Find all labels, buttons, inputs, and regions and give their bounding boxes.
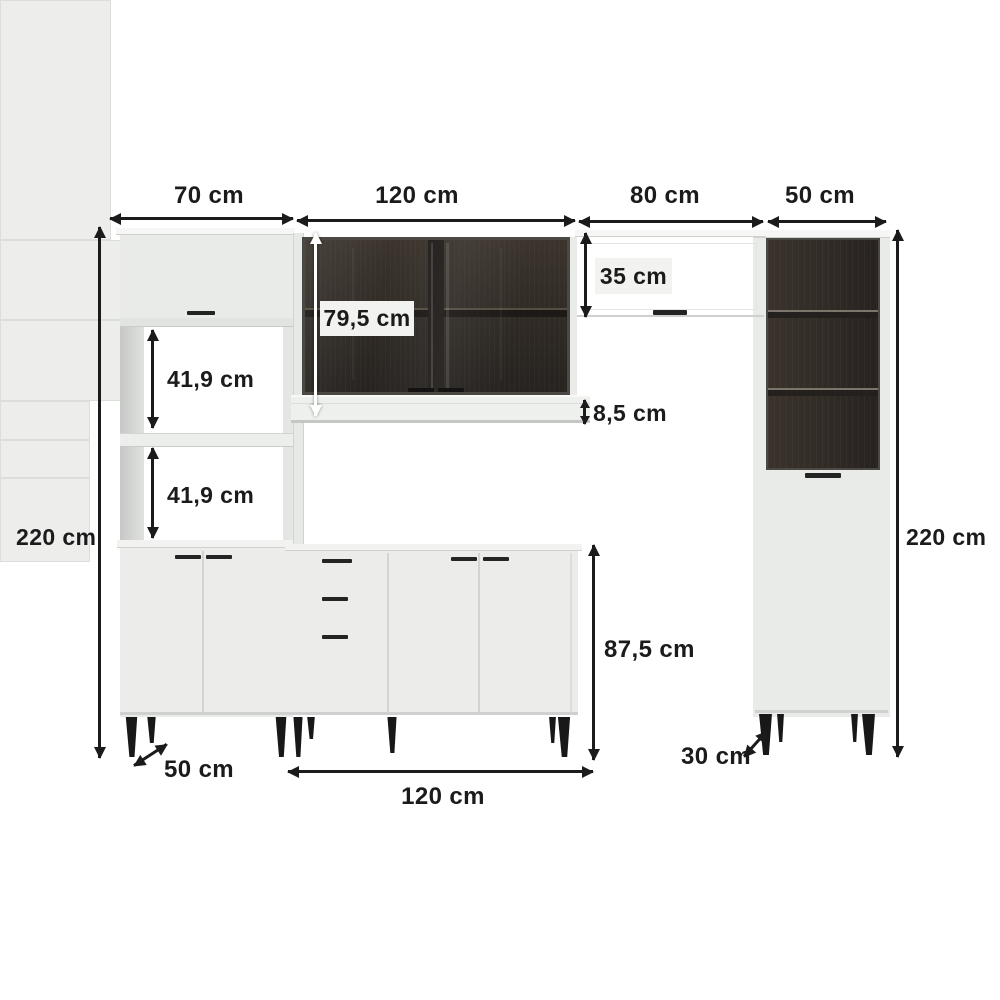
- dim-label-overhead-cabinet-width: 80 cm: [605, 183, 725, 209]
- dim-arrow-hutch-depth: [133, 743, 167, 767]
- base-leg-front-left: [292, 717, 304, 757]
- dim-arrow-countertop-thickness: [583, 400, 586, 424]
- hutch-middle-shelf: [120, 433, 293, 447]
- dim-arrow-wall-cabinet-height: [314, 233, 317, 416]
- base-door-split: [478, 553, 480, 714]
- tall-cabinet-leg-rear-left: [776, 714, 785, 742]
- wall-cabinet-end-panel: [570, 237, 577, 397]
- hutch-base-top-edge: [117, 540, 296, 548]
- hutch-base-door-handle-left: [175, 555, 201, 559]
- tall-cabinet-shelf-compartment-3: [768, 396, 878, 468]
- dim-label-base-cabinet-width: 120 cm: [383, 784, 503, 810]
- base-drawer-1-handle: [322, 559, 352, 563]
- base-drawer-1: [0, 401, 90, 440]
- hutch-bottom-edge: [120, 712, 293, 715]
- tall-cabinet-door: [0, 0, 111, 240]
- base-leg-rear-right: [548, 717, 557, 743]
- dim-arrow-hutch-width: [110, 217, 293, 220]
- dim-arrow-base-cabinet-width: [288, 770, 593, 773]
- base-drawer-door-divider: [387, 553, 389, 714]
- base-drawer-2-handle: [322, 597, 348, 601]
- dim-arrow-upper-niche-height: [151, 330, 154, 428]
- hutch-shelf-rail: [120, 318, 293, 327]
- dim-arrow-overhead-cabinet-height: [584, 233, 587, 317]
- dim-label-countertop-thickness: 8,5 cm: [593, 400, 667, 426]
- dim-arrow-lower-niche-height: [151, 448, 154, 538]
- base-cabinet-top-edge: [285, 544, 582, 551]
- hutch-base-door-split: [202, 551, 204, 713]
- kitchen-cabinet-dimension-diagram: 70 cm 120 cm 80 cm 50 cm 220 cm 220 cm 7…: [0, 0, 1000, 1000]
- tall-cabinet-leg-front-right: [860, 714, 877, 755]
- dim-arrow-right-total-height: [896, 230, 899, 757]
- countertop-front-line: [291, 403, 590, 404]
- dim-label-upper-niche-height: 41,9 cm: [167, 366, 254, 392]
- base-drawer-2: [0, 440, 90, 478]
- base-bottom-edge: [288, 712, 578, 715]
- hutch-top-door-handle: [187, 311, 215, 315]
- dim-label-wall-cabinet-height: 79,5 cm: [320, 301, 414, 336]
- countertop-shelf: [291, 395, 590, 423]
- dim-arrow-tall-cabinet-width: [768, 220, 886, 223]
- tall-cabinet-shelf-2: [768, 388, 878, 396]
- base-end-panel-line: [570, 553, 572, 714]
- tall-cabinet-shelf-compartment-2: [768, 318, 878, 388]
- base-leg-rear-left: [306, 717, 316, 739]
- dim-arrow-base-cabinet-height: [592, 545, 595, 760]
- dim-label-tall-cabinet-width: 50 cm: [760, 183, 880, 209]
- wall-cabinet-handle-left: [408, 388, 434, 392]
- dim-label-hutch-depth: 50 cm: [164, 757, 234, 783]
- hutch-leg-front-left: [124, 717, 139, 757]
- dim-label-lower-niche-height: 41,9 cm: [167, 482, 254, 508]
- dim-label-base-cabinet-height: 87,5 cm: [604, 637, 695, 663]
- dim-arrow-wall-cabinet-width: [297, 219, 575, 222]
- dim-label-hutch-width: 70 cm: [149, 183, 269, 209]
- dim-label-tall-cabinet-depth: 30 cm: [681, 744, 751, 770]
- tall-cabinet-door-handle: [805, 473, 841, 478]
- base-door-handle-right: [483, 557, 509, 561]
- tall-cabinet-top-edge: [753, 230, 890, 238]
- tall-cabinet-leg-rear-right: [850, 714, 859, 742]
- overhead-cabinet-top-edge: [575, 230, 766, 237]
- wall-cabinet-handle-right: [438, 388, 464, 392]
- hutch-leg-front-right: [274, 717, 288, 757]
- base-leg-middle: [386, 717, 398, 753]
- tall-cabinet-shelf-1: [768, 310, 878, 318]
- tall-cabinet-shelf-compartment-1: [768, 240, 878, 310]
- base-door-handle-left: [451, 557, 477, 561]
- hutch-base-doors: [120, 548, 293, 715]
- base-cabinet-body: [288, 551, 578, 715]
- dim-arrow-overhead-cabinet-width: [579, 220, 763, 223]
- hutch-leg-rear-left: [146, 717, 157, 743]
- hutch-top-edge: [116, 228, 295, 235]
- dim-label-overhead-cabinet-height: 35 cm: [595, 258, 672, 294]
- dim-label-wall-cabinet-width: 120 cm: [357, 183, 477, 209]
- hutch-base-door-handle-right: [206, 555, 232, 559]
- tall-cabinet-bottom-edge: [755, 710, 888, 713]
- base-leg-front-right: [556, 717, 572, 757]
- dim-arrow-left-total-height: [98, 227, 101, 758]
- dim-label-right-total-height: 220 cm: [906, 524, 986, 550]
- dim-label-left-total-height: 220 cm: [16, 524, 96, 550]
- overhead-cabinet-bottom-edge: [577, 315, 764, 317]
- base-drawer-3-handle: [322, 635, 348, 639]
